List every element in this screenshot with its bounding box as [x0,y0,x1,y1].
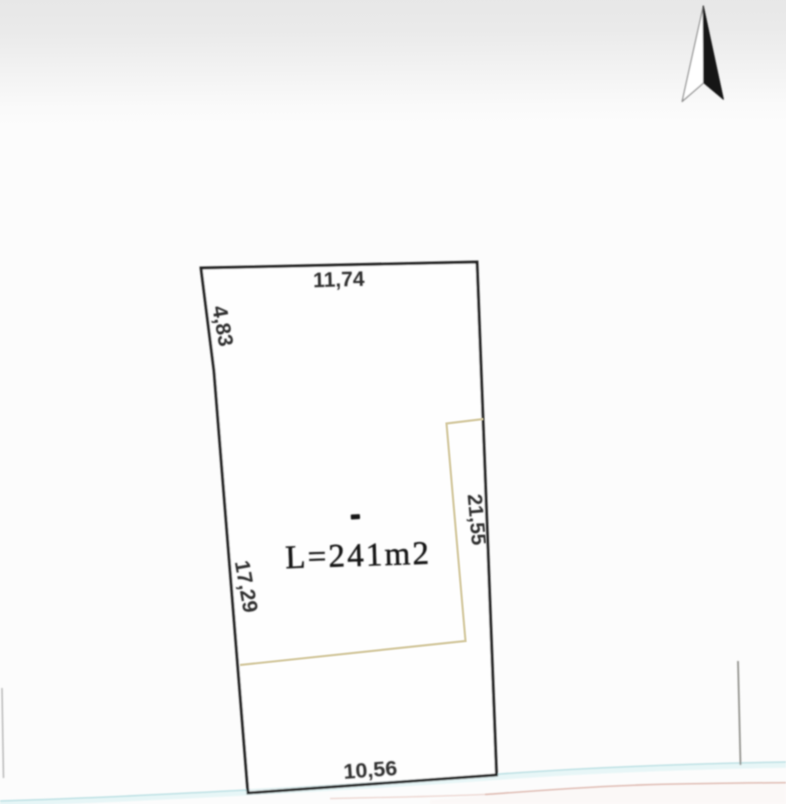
svg-text:10,56: 10,56 [343,756,398,784]
svg-text:11,74: 11,74 [313,268,365,292]
svg-text:L=241m2: L=241m2 [285,536,432,577]
svg-text:21,55: 21,55 [463,493,490,546]
